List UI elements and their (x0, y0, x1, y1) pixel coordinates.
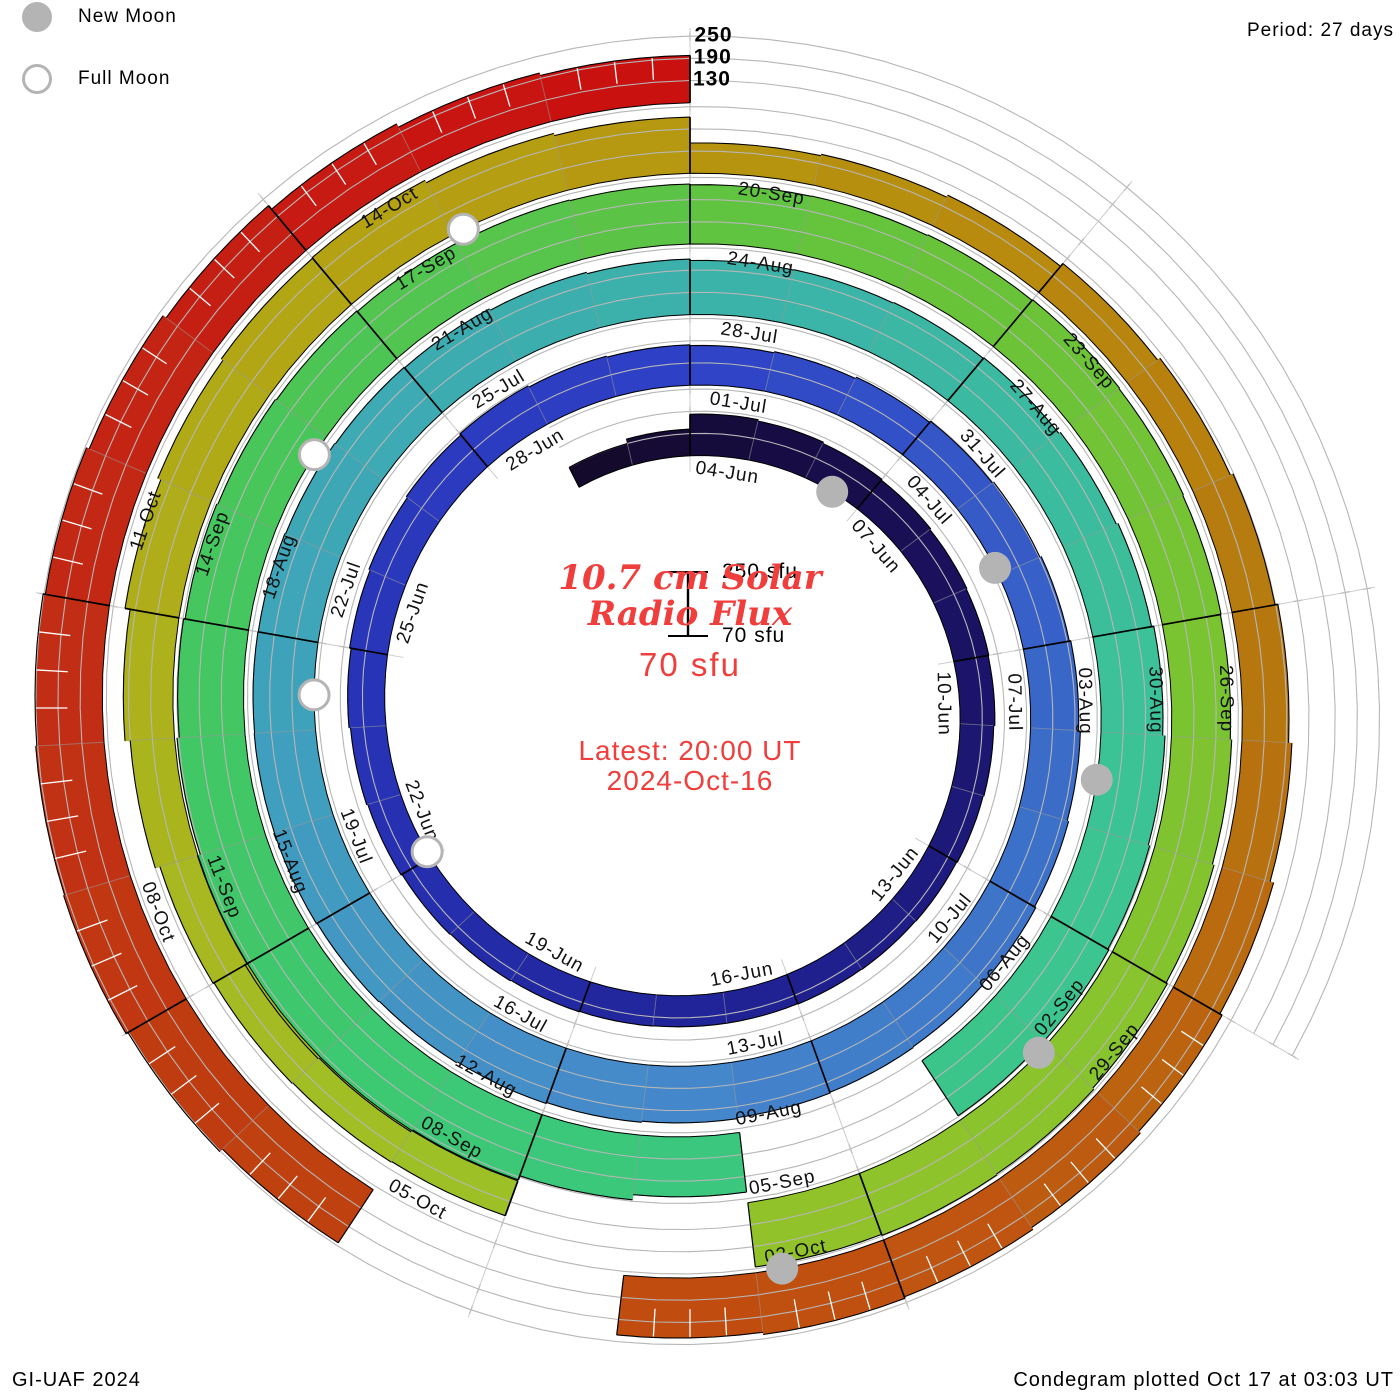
new-moon-marker (1081, 764, 1113, 796)
radial-scale-label: 250 (694, 23, 732, 46)
flux-bar (642, 1062, 738, 1123)
date-label: 07-Jul (1003, 673, 1025, 731)
full-moon-marker (412, 837, 442, 867)
flux-bar (569, 444, 632, 488)
radial-scale-label: 190 (694, 45, 732, 68)
flux-bar (690, 143, 821, 185)
new-moon-marker (1023, 1037, 1055, 1069)
date-label: 04-Jun (694, 457, 761, 488)
condegram-page: { "header": { "legend": { "new_moon": "N… (0, 0, 1400, 1400)
full-moon-marker (299, 680, 329, 710)
date-label: 10-Jun (933, 671, 955, 735)
flux-bar (580, 982, 657, 1026)
new-moon-marker (979, 552, 1011, 584)
flux-bar (952, 724, 994, 796)
date-label: 30-Aug (1144, 666, 1166, 734)
date-label: 28-Jul (719, 318, 779, 348)
flux-bar (351, 726, 401, 805)
new-moon-marker (766, 1253, 798, 1285)
flux-bar (633, 1133, 747, 1197)
flux-bar (178, 619, 249, 738)
radial-scale-labels: 250190130 (693, 23, 733, 90)
date-label: 03-Aug (1074, 667, 1096, 735)
date-label: 01-Jul (708, 388, 768, 418)
flux-bar (653, 992, 727, 1027)
radial-scale-label: 130 (693, 68, 731, 91)
full-moon-marker (299, 440, 329, 470)
date-label: 26-Sep (1215, 665, 1237, 733)
condegram-chart: 04-Jun07-Jun10-Jun13-Jun16-Jun19-Jun22-J… (0, 0, 1400, 1400)
full-moon-marker (448, 214, 478, 244)
flux-bar (570, 184, 690, 259)
new-moon-marker (816, 476, 848, 508)
flux-bar (348, 648, 388, 728)
flux-bar (607, 345, 690, 397)
